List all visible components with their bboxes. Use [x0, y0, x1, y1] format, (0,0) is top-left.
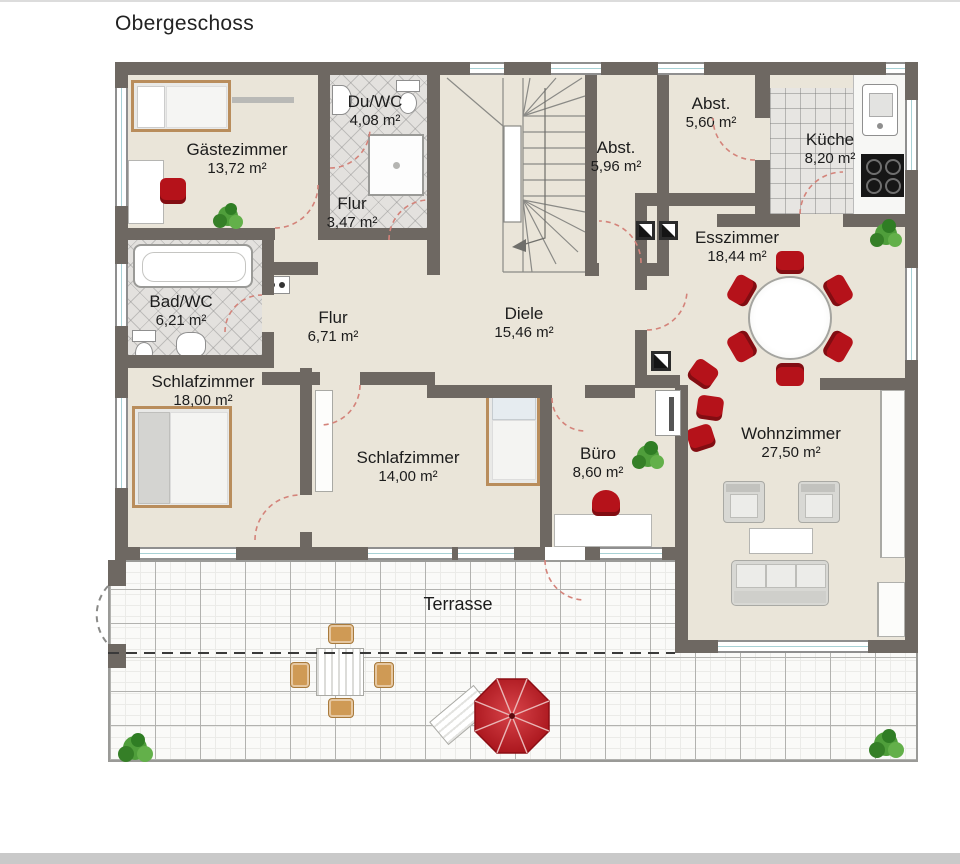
- burner: [885, 159, 901, 175]
- room-label-flur-klein: Flur3,47 m²: [327, 194, 378, 232]
- terrace-chair: [290, 662, 310, 688]
- floor-plan: Obergeschoss: [0, 0, 960, 864]
- wall: [585, 263, 599, 276]
- single-bed-duvet: [492, 420, 536, 480]
- guest-bed: [131, 80, 231, 132]
- office-chair: [592, 490, 620, 516]
- room-label-schlafzimmer-14: Schlafzimmer14,00 m²: [357, 448, 460, 486]
- wall: [128, 355, 262, 368]
- room-label-badwc: Bad/WC6,21 m²: [149, 292, 212, 330]
- room-label-esszimmer: Esszimmer18,44 m²: [695, 228, 779, 266]
- window: [115, 88, 128, 206]
- double-bed: [132, 406, 232, 508]
- terrace-chair: [328, 624, 354, 644]
- sink-basin: [869, 93, 893, 117]
- wall: [427, 75, 440, 275]
- wall: [717, 214, 800, 227]
- wall: [820, 378, 905, 390]
- dining-chair: [776, 251, 804, 274]
- burner: [866, 159, 882, 175]
- window: [551, 62, 601, 75]
- coffee-table: [749, 528, 813, 554]
- kitchen-sink-icon: [862, 84, 898, 136]
- page-title: Obergeschoss: [115, 12, 254, 36]
- terrace-door-opening: [545, 547, 585, 560]
- tv-icon: [669, 397, 674, 431]
- office-desk: [554, 514, 652, 547]
- double-bed-duvet: [170, 412, 228, 504]
- wall: [300, 532, 312, 547]
- room-label-schlafzimmer-18: Schlafzimmer18,00 m²: [152, 372, 255, 410]
- chimney-icon: [636, 221, 655, 240]
- dining-table: [748, 276, 832, 360]
- bottom-border: [0, 853, 960, 864]
- wall-shelf-unit: [877, 582, 905, 637]
- armchair: [798, 481, 840, 523]
- window: [905, 268, 918, 360]
- wardrobe: [315, 390, 333, 492]
- wall: [262, 240, 274, 295]
- window: [905, 100, 918, 170]
- window: [658, 62, 704, 75]
- window: [115, 398, 128, 488]
- armchair-back: [726, 484, 760, 492]
- shower-icon: [368, 134, 424, 196]
- guest-bed-duvet: [166, 86, 227, 128]
- double-bed-pillows: [138, 412, 170, 504]
- bathtub-inner: [142, 252, 246, 282]
- wall: [585, 385, 635, 398]
- wall: [540, 385, 552, 547]
- single-bed: [486, 388, 540, 486]
- window: [140, 547, 236, 560]
- wall: [115, 62, 918, 75]
- room-label-kueche: Küche8,20 m²: [805, 130, 856, 168]
- tv-niche: [655, 390, 681, 436]
- armchair-back: [801, 484, 835, 492]
- burner: [885, 178, 901, 194]
- bathtub-icon: [133, 244, 253, 288]
- chimney-icon: [651, 351, 671, 371]
- sofa-cushion: [736, 564, 766, 588]
- terrace-bay-dashed-arc: [97, 586, 108, 644]
- wall: [108, 644, 126, 668]
- room-label-abstellraum-2: Abst.5,60 m²: [686, 94, 737, 132]
- window: [368, 547, 452, 560]
- sofa-cushion: [796, 564, 826, 588]
- window: [470, 62, 504, 75]
- room-label-wohnzimmer: Wohnzimmer27,50 m²: [741, 424, 841, 462]
- guest-chair: [160, 178, 186, 204]
- terrace-label: Terrasse: [423, 594, 492, 615]
- window: [886, 62, 905, 75]
- window: [115, 264, 128, 326]
- wall: [755, 75, 770, 118]
- armchair: [723, 481, 765, 523]
- washer-knob: [279, 282, 285, 288]
- wall: [128, 228, 275, 240]
- wall: [635, 375, 680, 388]
- room-label-duwc: Du/WC4,08 m²: [348, 92, 403, 130]
- room-label-diele: Diele15,46 m²: [494, 304, 553, 342]
- sofa: [731, 560, 829, 606]
- top-border: [0, 0, 960, 2]
- room-label-gaestezimmer: Gästezimmer13,72 m²: [186, 140, 287, 178]
- burner: [866, 178, 882, 194]
- terrace-chair: [328, 698, 354, 718]
- chimney-icon: [659, 221, 678, 240]
- stove-icon: [861, 154, 904, 197]
- guest-desk: [128, 160, 164, 224]
- armchair-cushion: [805, 494, 833, 518]
- wall-shelf-unit: [880, 390, 905, 558]
- armchair-cushion: [730, 494, 758, 518]
- wall-shelf: [232, 97, 294, 103]
- room-label-buero: Büro8,60 m²: [573, 444, 624, 482]
- dining-chair: [776, 363, 804, 386]
- shower-drain: [393, 162, 400, 169]
- wall: [657, 75, 669, 276]
- wall: [635, 206, 647, 290]
- window: [600, 547, 662, 560]
- wall: [108, 560, 126, 586]
- sofa-cushion: [766, 564, 796, 588]
- sofa-base: [734, 591, 826, 603]
- lounge-red-chair: [695, 394, 724, 421]
- wall: [300, 368, 312, 495]
- duwc-toilet-tank-icon: [396, 80, 420, 92]
- room-label-flur: Flur6,71 m²: [308, 308, 359, 346]
- wall: [262, 332, 274, 368]
- room-label-abstellraum-1: Abst.5,96 m²: [591, 138, 642, 176]
- bath-toilet-tank-icon: [132, 330, 156, 342]
- wall: [755, 160, 770, 214]
- terrace-table: [316, 648, 364, 696]
- guest-bed-pillow: [137, 86, 165, 128]
- wall: [427, 385, 552, 398]
- wall: [635, 193, 770, 206]
- window: [458, 547, 514, 560]
- window: [718, 640, 868, 653]
- sink-faucet: [877, 123, 883, 129]
- terrace-chair: [374, 662, 394, 688]
- wall: [843, 214, 905, 227]
- wall: [360, 372, 435, 385]
